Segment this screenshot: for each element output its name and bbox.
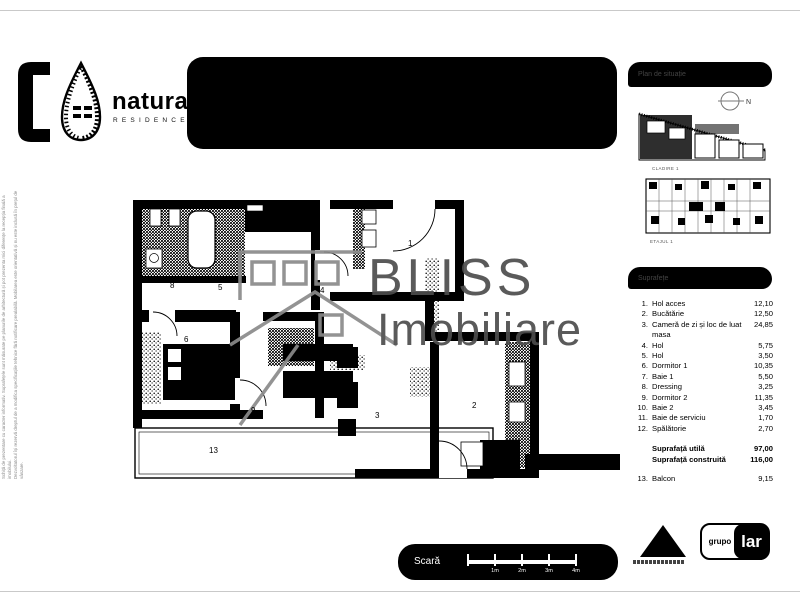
grupo-label: grupo bbox=[702, 525, 738, 558]
scale-tick-label: 1m bbox=[485, 568, 505, 574]
grupo-lar-logo: grupo lar bbox=[700, 523, 770, 560]
watermark-line2: Imobiliare bbox=[377, 304, 582, 355]
developer-triangle-logo bbox=[638, 523, 688, 559]
brand-tagline: RESIDENCE bbox=[113, 117, 189, 124]
room-label: 8 bbox=[170, 281, 175, 290]
scale-bar: Scară 1m 2m 3m 4m bbox=[398, 544, 618, 580]
scale-tick-label: 3m bbox=[539, 568, 559, 574]
scale-tick bbox=[494, 554, 496, 566]
legend-row: 7.Baie 15,50 bbox=[633, 372, 773, 382]
legend-title: Suprafețe bbox=[638, 275, 668, 282]
legend-row: 10.Baie 23,45 bbox=[633, 403, 773, 413]
compass-icon: N bbox=[718, 92, 751, 110]
site-plan-title: Plan de situație bbox=[638, 71, 686, 78]
site-plan-caption: CLADIRE 1 bbox=[652, 166, 679, 171]
legend-row: 9.Dormitor 211,35 bbox=[633, 393, 773, 403]
redacted-title-banner bbox=[187, 57, 617, 149]
room-label: 3 bbox=[375, 411, 380, 420]
scale-tick bbox=[548, 554, 550, 566]
scale-tick bbox=[467, 554, 469, 566]
top-rule bbox=[0, 10, 800, 11]
watermark-line1: BLISS bbox=[368, 249, 535, 307]
bracket-icon bbox=[18, 62, 52, 142]
room-label: 9 bbox=[251, 406, 256, 415]
bottom-rule bbox=[0, 591, 800, 592]
scale-tick bbox=[521, 554, 523, 566]
legend-row: 3.Cameră de zi și loc de luat masa24,85 bbox=[633, 320, 773, 341]
legend-header-bar: Suprafețe bbox=[628, 267, 772, 289]
scale-tick bbox=[575, 554, 577, 566]
room-label: 4 bbox=[320, 286, 325, 295]
legend-row: 11.Baie de serviciu1,70 bbox=[633, 413, 773, 423]
scale-label: Scară bbox=[414, 556, 440, 567]
room-label: 6 bbox=[184, 335, 189, 344]
total-usable-area: Suprafață utilă97,00 bbox=[633, 444, 773, 454]
disclaimer-vertical-text: Schiță de prezentare cu caracter informa… bbox=[1, 189, 25, 479]
total-built-area: Suprafață construită116,00 bbox=[633, 455, 773, 465]
floor-key-thumbnail bbox=[645, 178, 771, 236]
floor-key-caption: ETAJUL 1 bbox=[650, 239, 673, 244]
scale-tick-label: 2m bbox=[512, 568, 532, 574]
apartment-floor-plan: BLISS Imobiliare 1 2 3 4 5 6 8 9 13 bbox=[125, 192, 620, 487]
room-legend: 1.Hol acces12,10 2.Bucătărie12,50 3.Came… bbox=[633, 299, 773, 485]
room-label: 2 bbox=[472, 401, 477, 410]
legend-row: 6.Dormitor 110,35 bbox=[633, 361, 773, 371]
brand-logo: natura RESIDENCE bbox=[16, 60, 181, 148]
room-label: 5 bbox=[218, 283, 223, 292]
legend-row: 2.Bucătărie12,50 bbox=[633, 309, 773, 319]
scale-tick-label: 4m bbox=[566, 568, 586, 574]
legend-row: 8.Dressing3,25 bbox=[633, 382, 773, 392]
triangle-logo-caption bbox=[633, 560, 685, 564]
room-label: 13 bbox=[209, 446, 218, 455]
brand-name: natura bbox=[112, 88, 188, 116]
lar-label: lar bbox=[734, 524, 769, 559]
room-label: 1 bbox=[408, 239, 413, 248]
legend-row: 1.Hol acces12,10 bbox=[633, 299, 773, 309]
leaf-drop-icon bbox=[58, 60, 104, 144]
site-plan-thumbnail: N bbox=[637, 88, 769, 166]
svg-text:N: N bbox=[746, 99, 751, 106]
legend-row: 4.Hol5,75 bbox=[633, 341, 773, 351]
balcony-row: 13.Balcon9,15 bbox=[633, 474, 773, 484]
site-plan-header-bar: Plan de situație bbox=[628, 62, 772, 87]
floorplan-page: { "brand": { "name": "natura", "tagline"… bbox=[0, 0, 800, 600]
legend-row: 12.Spălătorie2,70 bbox=[633, 424, 773, 434]
legend-row: 5.Hol3,50 bbox=[633, 351, 773, 361]
